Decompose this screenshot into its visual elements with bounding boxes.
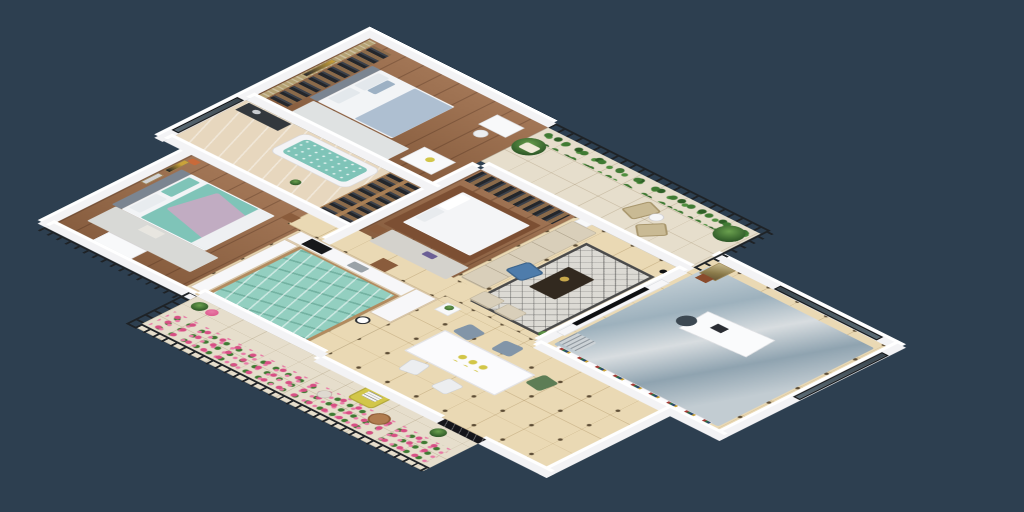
floorplan-stage [0, 0, 1024, 512]
floorplan-3d-model [0, 0, 1021, 512]
terrace-lounge-chair [635, 223, 668, 237]
